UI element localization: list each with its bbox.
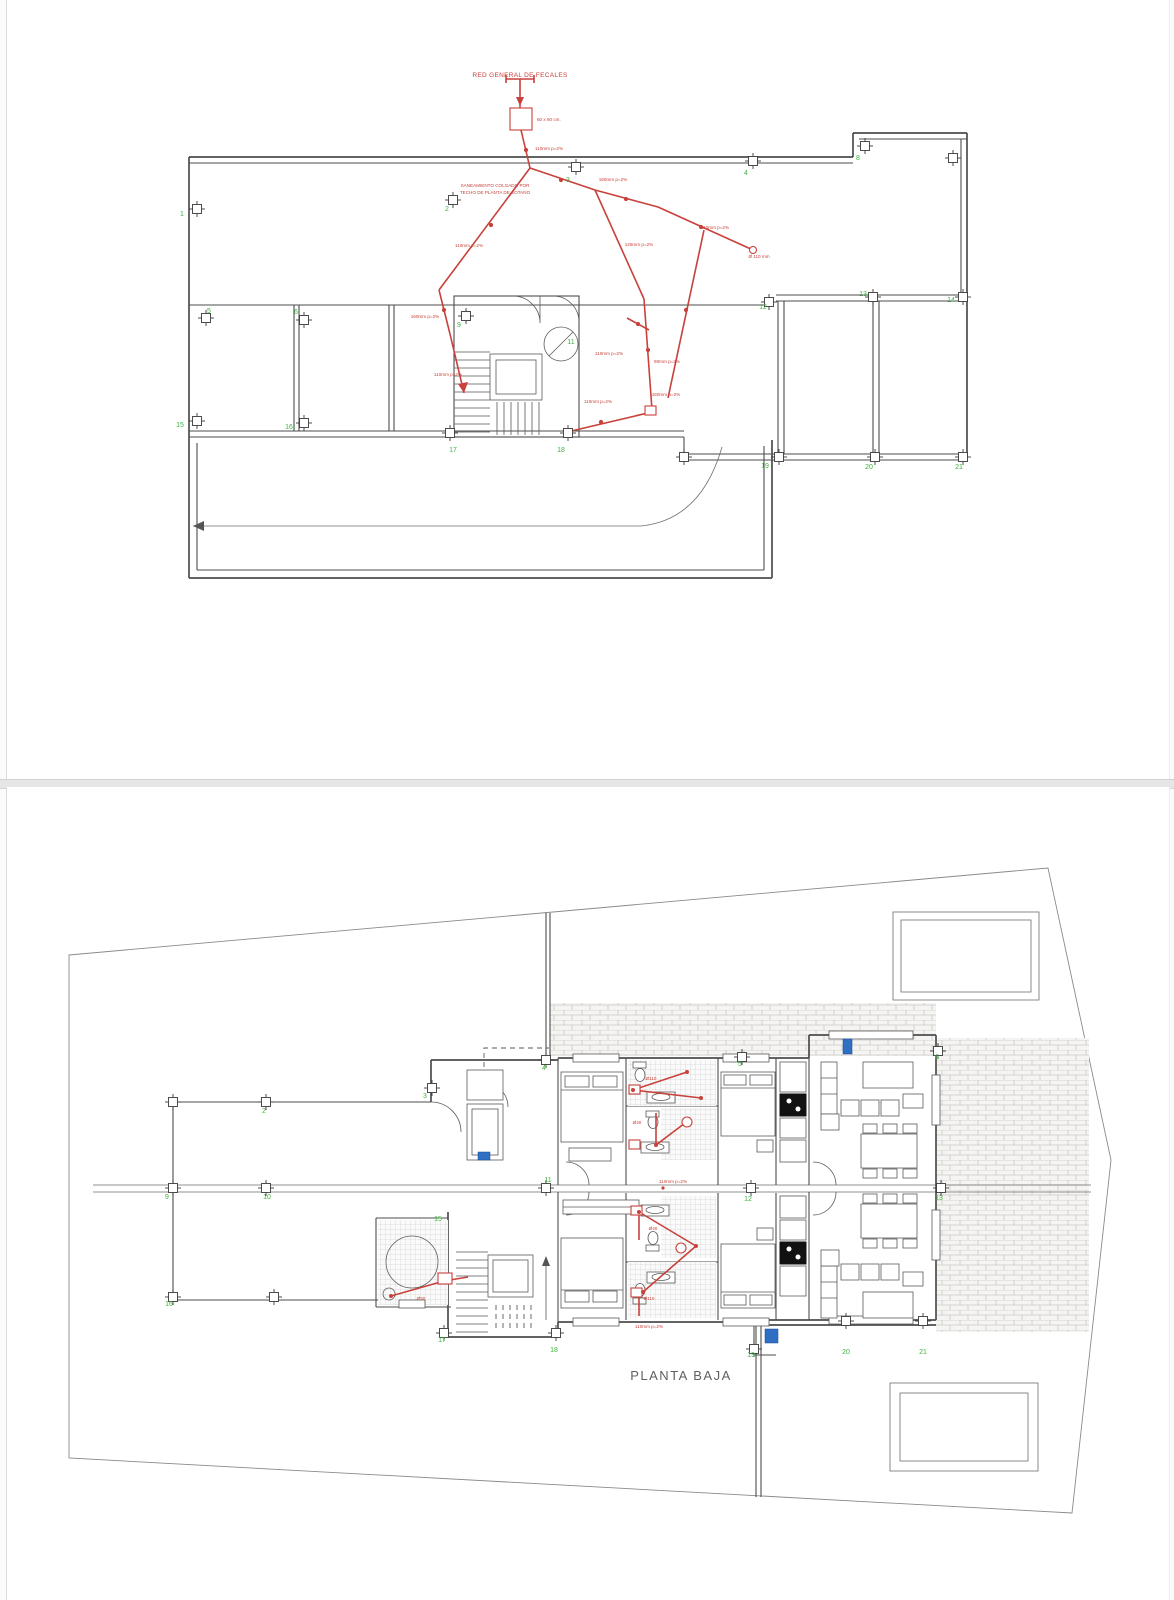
stair-core (454, 296, 579, 437)
basement-building-walls (189, 133, 967, 578)
groundfloor-plan-svg: 110mm p=2%Ø110Ø40Ø40Ø110Ø50110mm p=2% 23… (7, 787, 1169, 1600)
pipe-label: Ø40 (633, 1120, 642, 1125)
grid-number: 1 (180, 211, 184, 218)
grid-number: 11 (567, 339, 574, 346)
upper-living-dining (821, 1062, 923, 1178)
grid-number: 21 (919, 1349, 927, 1356)
arqueta-label: 60 x 60 cm. (537, 117, 561, 122)
grid-number: 2 (445, 206, 449, 213)
grid-number: 3 (423, 1093, 427, 1100)
pipe-label: Ø110 (644, 1296, 655, 1301)
grid-number: 9 (165, 1194, 169, 1201)
panel-groundfloor-plan: 110mm p=2%Ø110Ø40Ø40Ø110Ø50110mm p=2% 23… (6, 787, 1170, 1600)
sewage-title: RED GENERAL DE FECALES (472, 72, 568, 79)
stair-up-arrow-icon (542, 1256, 550, 1266)
driveway-ramp (193, 447, 722, 531)
grid-number: 20 (842, 1349, 850, 1356)
grid-number: 17 (438, 1337, 446, 1344)
pipe-label: 160mm p=2% (599, 177, 627, 182)
jacuzzi-room (378, 1220, 448, 1308)
grid-number: 3 (566, 177, 570, 184)
pipe-label: Ø40 (649, 1226, 658, 1231)
pipe-label: 160mm p=2% (411, 314, 439, 319)
pipe-label: 110mm p=2% (659, 1179, 687, 1184)
grid-number: 15 (434, 1216, 442, 1223)
panel-basement-plan: RED GENERAL DE FECALES 60 x 60 cm. SANEA… (6, 0, 1170, 779)
sewage-network: RED GENERAL DE FECALES 60 x 60 cm. SANEA… (411, 72, 770, 432)
pipe-label: 110mm p=2% (455, 243, 483, 248)
pipe-label: 160mm p=2% (652, 392, 680, 397)
grid-number: 16 (165, 1301, 173, 1308)
pipe-label: 110mm p=2% (535, 146, 563, 151)
grid-number: 12 (759, 304, 767, 311)
grid-number: 18 (550, 1347, 558, 1354)
grid-number: 19 (747, 1352, 755, 1359)
grid-number: 4 (542, 1065, 546, 1072)
arqueta-box (510, 108, 532, 130)
grid-number: 20 (865, 464, 873, 471)
pipe-label: 110mm p=2% (434, 372, 462, 377)
grid-number: 4 (744, 170, 748, 177)
grid-number: 2 (262, 1108, 266, 1115)
grid-number: 11 (544, 1177, 551, 1184)
pipe-label: Ø 110 mm (748, 254, 769, 259)
grid-number: 19 (761, 463, 769, 470)
sewage-note-line2: TECHO DE PLANTA DE SOTANO (460, 190, 531, 195)
grid-number: 17 (449, 447, 457, 454)
grid-number: 5 (738, 1061, 742, 1068)
pipe-label: 110mm p=2% (584, 399, 612, 404)
grid-number: 5 (207, 308, 211, 315)
ramp-arrow-icon (193, 521, 204, 531)
plan-title: PLANTA BAJA (630, 1368, 732, 1383)
pipe-label: 110mm p=2% (701, 225, 729, 230)
lower-living-dining (821, 1194, 923, 1318)
main-connection-icon (506, 75, 534, 108)
pipe-label: Ø110 (646, 1076, 657, 1081)
grid-number: 10 (263, 1194, 271, 1201)
pipe-label: 125mm p=2% (625, 242, 653, 247)
grid-number: 13 (935, 1195, 943, 1202)
pipe-label: 110mm p=2% (595, 351, 623, 356)
page: RED GENERAL DE FECALES 60 x 60 cm. SANEA… (0, 0, 1174, 1600)
grid-number: 14 (947, 297, 955, 304)
pipe-label: 110mm p=2% (635, 1324, 663, 1329)
grid-number: 21 (955, 464, 963, 471)
grid-number: 9 (457, 322, 461, 329)
grid-number: 6 (294, 309, 298, 316)
groundfloor-stair-core (456, 1070, 550, 1332)
grid-number: 12 (744, 1196, 752, 1203)
grid-number: 13 (859, 291, 867, 298)
pipe-label: 90mm p=2% (654, 359, 680, 364)
kitchens (780, 1062, 806, 1296)
grid-number: 18 (557, 447, 565, 454)
pipe-label: Ø50 (417, 1296, 426, 1301)
grid-number: 6 (935, 1054, 939, 1061)
grid-number: 15 (176, 422, 184, 429)
sewage-note-line1: SANEAMIENTO COLGADO POR (461, 183, 531, 188)
basement-plan-svg: RED GENERAL DE FECALES 60 x 60 cm. SANEA… (7, 0, 1169, 779)
grid-number: 8 (856, 155, 860, 162)
grid-number: 16 (285, 424, 293, 431)
